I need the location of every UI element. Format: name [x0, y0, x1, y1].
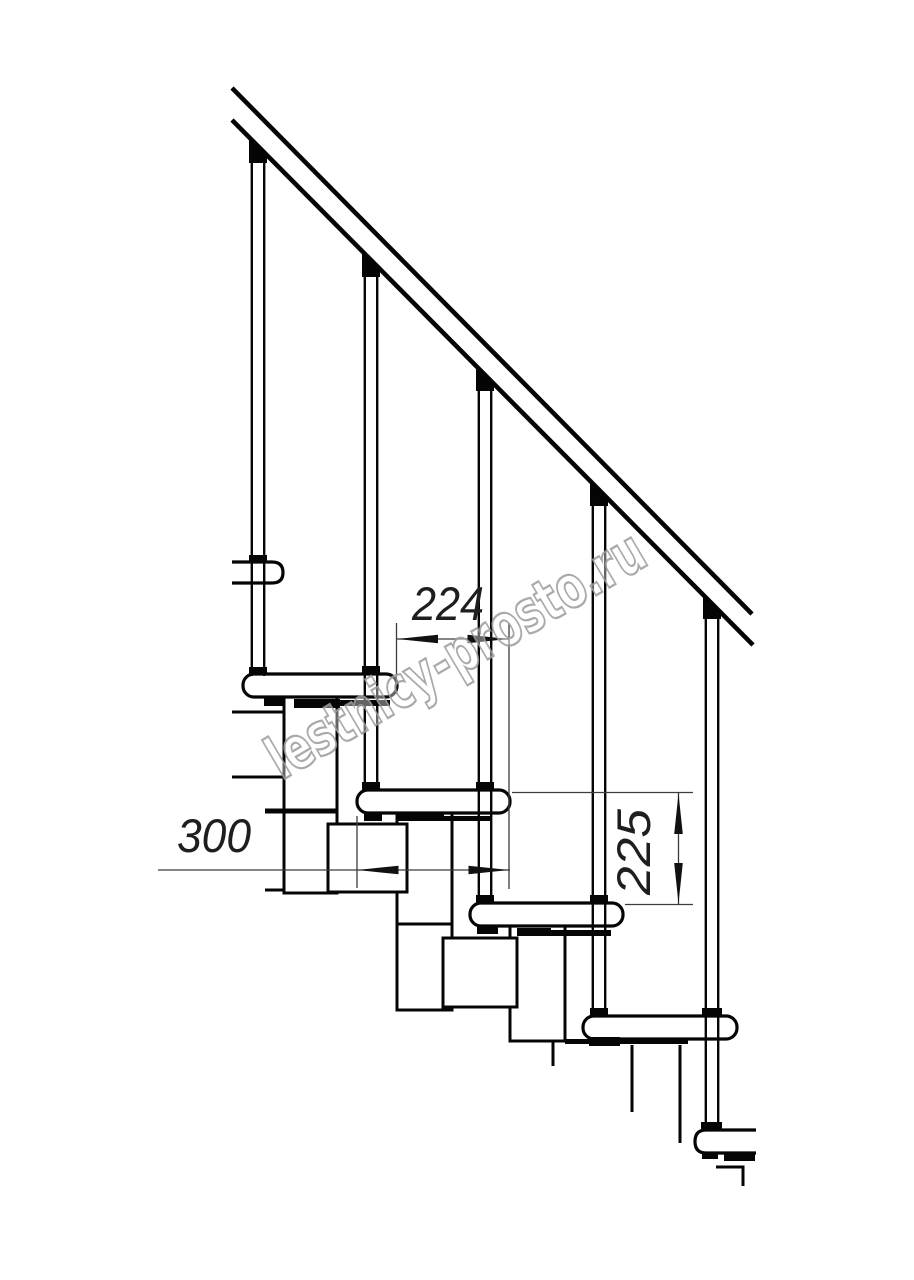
under-tread-5-feet — [702, 1152, 755, 1161]
tread-2 — [357, 790, 510, 813]
tread-0-cut — [232, 562, 283, 583]
technical-drawing-page: 224 300 225 lestnicy-prosto.ru — [0, 0, 914, 1280]
mount-tread0 — [249, 555, 267, 563]
dimension-225: 225 — [512, 793, 693, 905]
mount-tread5 — [701, 1122, 722, 1131]
mount-tread4-b — [702, 1008, 722, 1017]
module-box-2 — [443, 938, 517, 1007]
dim-300-label: 300 — [177, 809, 251, 862]
mount-tread2-a — [362, 782, 380, 791]
mount-tread1-a — [249, 667, 267, 675]
baluster-5 — [706, 613, 718, 1130]
mount-tread3-b — [590, 895, 608, 904]
watermark-text: lestnicy-prosto.ru — [254, 516, 658, 793]
dim-225-arrow-down — [674, 863, 683, 904]
tread-4 — [583, 1016, 737, 1039]
module-box-1 — [328, 824, 407, 892]
baluster-1 — [252, 156, 264, 676]
mount-tread4-a — [590, 1008, 608, 1017]
module-break-lines — [553, 1041, 743, 1186]
staircase-drawing: 224 300 225 lestnicy-prosto.ru — [0, 0, 914, 1280]
mount-tread2-b — [476, 782, 494, 791]
dim-300-arrow-right — [469, 866, 510, 875]
dim-225-label: 225 — [607, 808, 660, 896]
under-tread-2-feet — [364, 814, 492, 821]
dim-225-arrow-up — [674, 794, 683, 835]
tread-3 — [470, 903, 623, 926]
handrail — [232, 88, 753, 645]
mount-tread3-a — [476, 895, 494, 904]
tread-5-cut — [695, 1130, 756, 1153]
